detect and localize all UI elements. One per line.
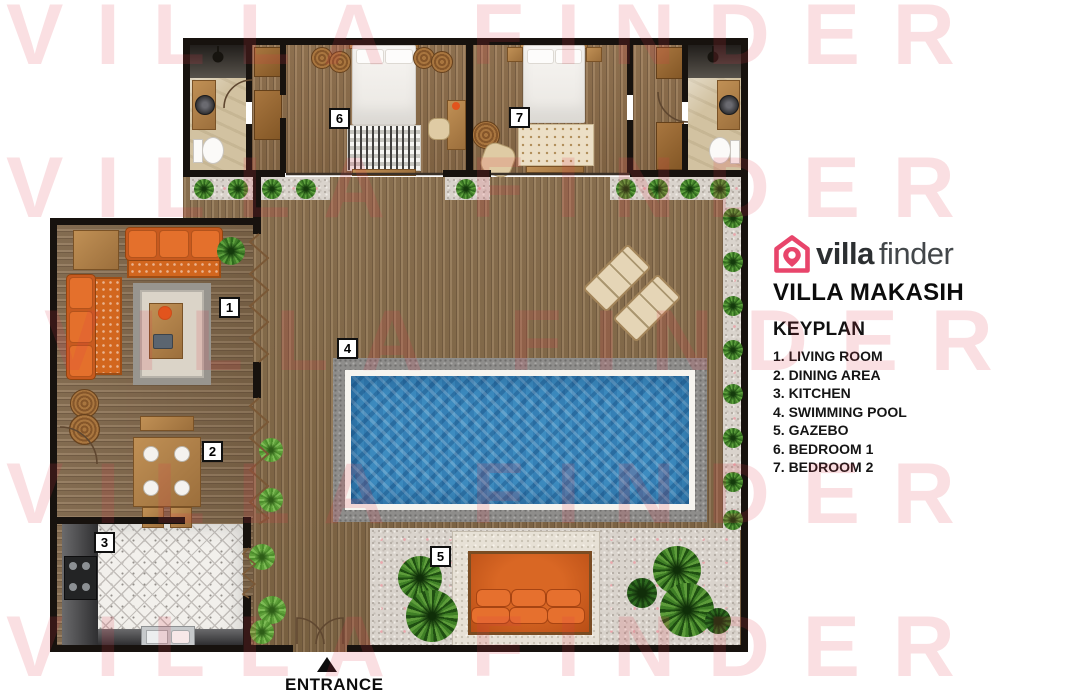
keyplan-badge-dining-area: 2 [202,441,223,462]
potted-plant [217,237,245,265]
planter-plant [194,179,214,199]
tray [153,334,173,349]
bathroom-right-shower [688,45,741,78]
plate [143,446,159,462]
desk-flowers [452,102,460,110]
keyplan-badge-bedroom2: 7 [509,107,530,128]
logo-word-finder: finder [879,236,954,272]
planter-plant [228,179,248,199]
sofa-top [125,227,223,261]
planter-plant [616,179,636,199]
sofa-cushion [69,277,93,309]
info-panel: villafinder VILLA MAKASIH KEYPLAN 1. LIV… [773,234,1073,477]
wall [183,38,190,177]
pillow [527,49,554,64]
wall [50,218,260,225]
daybed-cushion [476,589,511,607]
sofa-cushion [191,230,220,258]
keyplan-badge-bedroom1: 6 [329,108,350,129]
shrub [259,488,283,512]
keyplan-list: 1. LIVING ROOM 2. DINING AREA 3. KITCHEN… [773,347,1073,477]
dining-bench [140,416,194,431]
wall [741,38,748,177]
wardrobe [656,47,684,79]
keyplan-item-swimming-pool: 4. SWIMMING POOL [773,403,1073,422]
wall [682,124,688,173]
sofa-cushion [69,345,93,377]
wall [280,118,286,173]
dining-table [133,437,201,507]
desk-chair [428,118,450,140]
planter-plant [723,252,743,272]
nightstand [507,47,523,62]
wall [630,170,748,177]
planter-plant [723,296,743,316]
wall [57,517,185,524]
wall [741,177,748,652]
toilet-tank [730,140,740,164]
keyplan-item-living-room: 1. LIVING ROOM [773,347,1073,366]
planter-plant [680,179,700,199]
planter-plant [456,179,476,199]
sink-basin [146,630,168,644]
wall [682,45,688,102]
sofa-cushion [159,230,188,258]
bed-bench [352,169,416,176]
keyplan-badge-gazebo: 5 [430,546,451,567]
round-basin [719,95,739,115]
planter-plant [296,179,316,199]
sofa-cushion [69,311,93,343]
villa-title: VILLA MAKASIH [773,279,1073,307]
shrub [259,438,283,462]
entrance-arrow-icon [317,657,337,672]
cooktop-burner [82,583,90,591]
planter-plant [262,179,282,199]
plate [143,480,159,496]
wall [243,596,251,652]
villafinder-logo-icon [773,234,811,274]
wall [243,517,251,548]
pillow [555,49,582,64]
logo-word-villa: villa [816,236,874,272]
cooktop-burner [82,562,90,570]
bed-bedroom1 [352,45,416,125]
garden-bush [627,578,657,608]
toilet-bowl [709,137,731,164]
keyplan-item-bedroom2: 7. BEDROOM 2 [773,458,1073,477]
wall [347,645,748,652]
wall [246,45,252,102]
rug-bedroom2 [518,124,594,166]
round-basin [195,95,215,115]
woven-pouf [329,51,351,73]
floor-pouf [69,414,100,445]
swimming-pool-water [351,376,689,504]
cooktop-burner [69,562,77,570]
villafinder-logo: villafinder [773,234,1073,274]
planter-plant [710,179,730,199]
toilet-bowl [202,137,224,164]
villa-floorplan-page: 1 2 3 4 5 6 7 ENTRANCE villafinder VILLA… [0,0,1080,700]
planter-plant [723,472,743,492]
wall [466,45,473,173]
wall [183,38,748,45]
wardrobe [656,122,684,170]
plate [174,446,190,462]
planter-plant [723,208,743,228]
planter-plant [723,384,743,404]
plate [174,480,190,496]
flower-bowl [158,306,172,320]
wall [253,362,261,398]
wardrobe [254,47,282,77]
bathroom-left-shower [190,45,246,78]
palm-tree [660,583,714,637]
daybed-cushion [471,607,510,624]
palm-tree [406,590,458,642]
woven-pouf [431,51,453,73]
keyplan-heading: KEYPLAN [773,319,1073,341]
kitchen-sink [141,626,195,647]
keyplan-item-kitchen: 3. KITCHEN [773,384,1073,403]
sofa-cushion [128,230,157,258]
entrance-label: ENTRANCE [285,675,383,695]
keyplan-badge-swimming-pool: 4 [337,338,358,359]
garden-bush [705,608,731,634]
wall [253,172,261,234]
wardrobe [254,90,282,140]
pillow [356,49,384,64]
shrub [249,544,275,570]
daybed-cushion [546,589,581,607]
wall [627,45,633,95]
wall [57,645,293,652]
wall [246,124,252,173]
daybed-cushion [509,607,548,624]
sofa-left [66,274,96,380]
planter-plant [723,428,743,448]
shrub [250,620,274,644]
nightstand [586,47,602,62]
keyplan-badge-living-room: 1 [219,297,240,318]
cooktop-burner [69,583,77,591]
bed-bench [526,166,584,173]
planter-plant [723,510,743,530]
kitchen-cooktop [64,556,97,600]
keyplan-item-gazebo: 5. GAZEBO [773,421,1073,440]
daybed-cushion [511,589,546,607]
keyplan-badge-kitchen: 3 [94,532,115,553]
wall [50,218,57,652]
planter-plant [648,179,668,199]
wall [280,45,286,95]
wall [627,120,633,173]
planter-plant [723,340,743,360]
pillow [385,49,413,64]
side-table [73,230,119,270]
daybed-cushion [547,607,585,624]
keyplan-item-dining-area: 2. DINING AREA [773,366,1073,385]
wall [183,170,285,177]
rug-bedroom1 [347,125,421,171]
sink-basin [171,630,190,644]
keyplan-item-bedroom1: 6. BEDROOM 1 [773,440,1073,459]
bed-bedroom2 [523,45,585,123]
